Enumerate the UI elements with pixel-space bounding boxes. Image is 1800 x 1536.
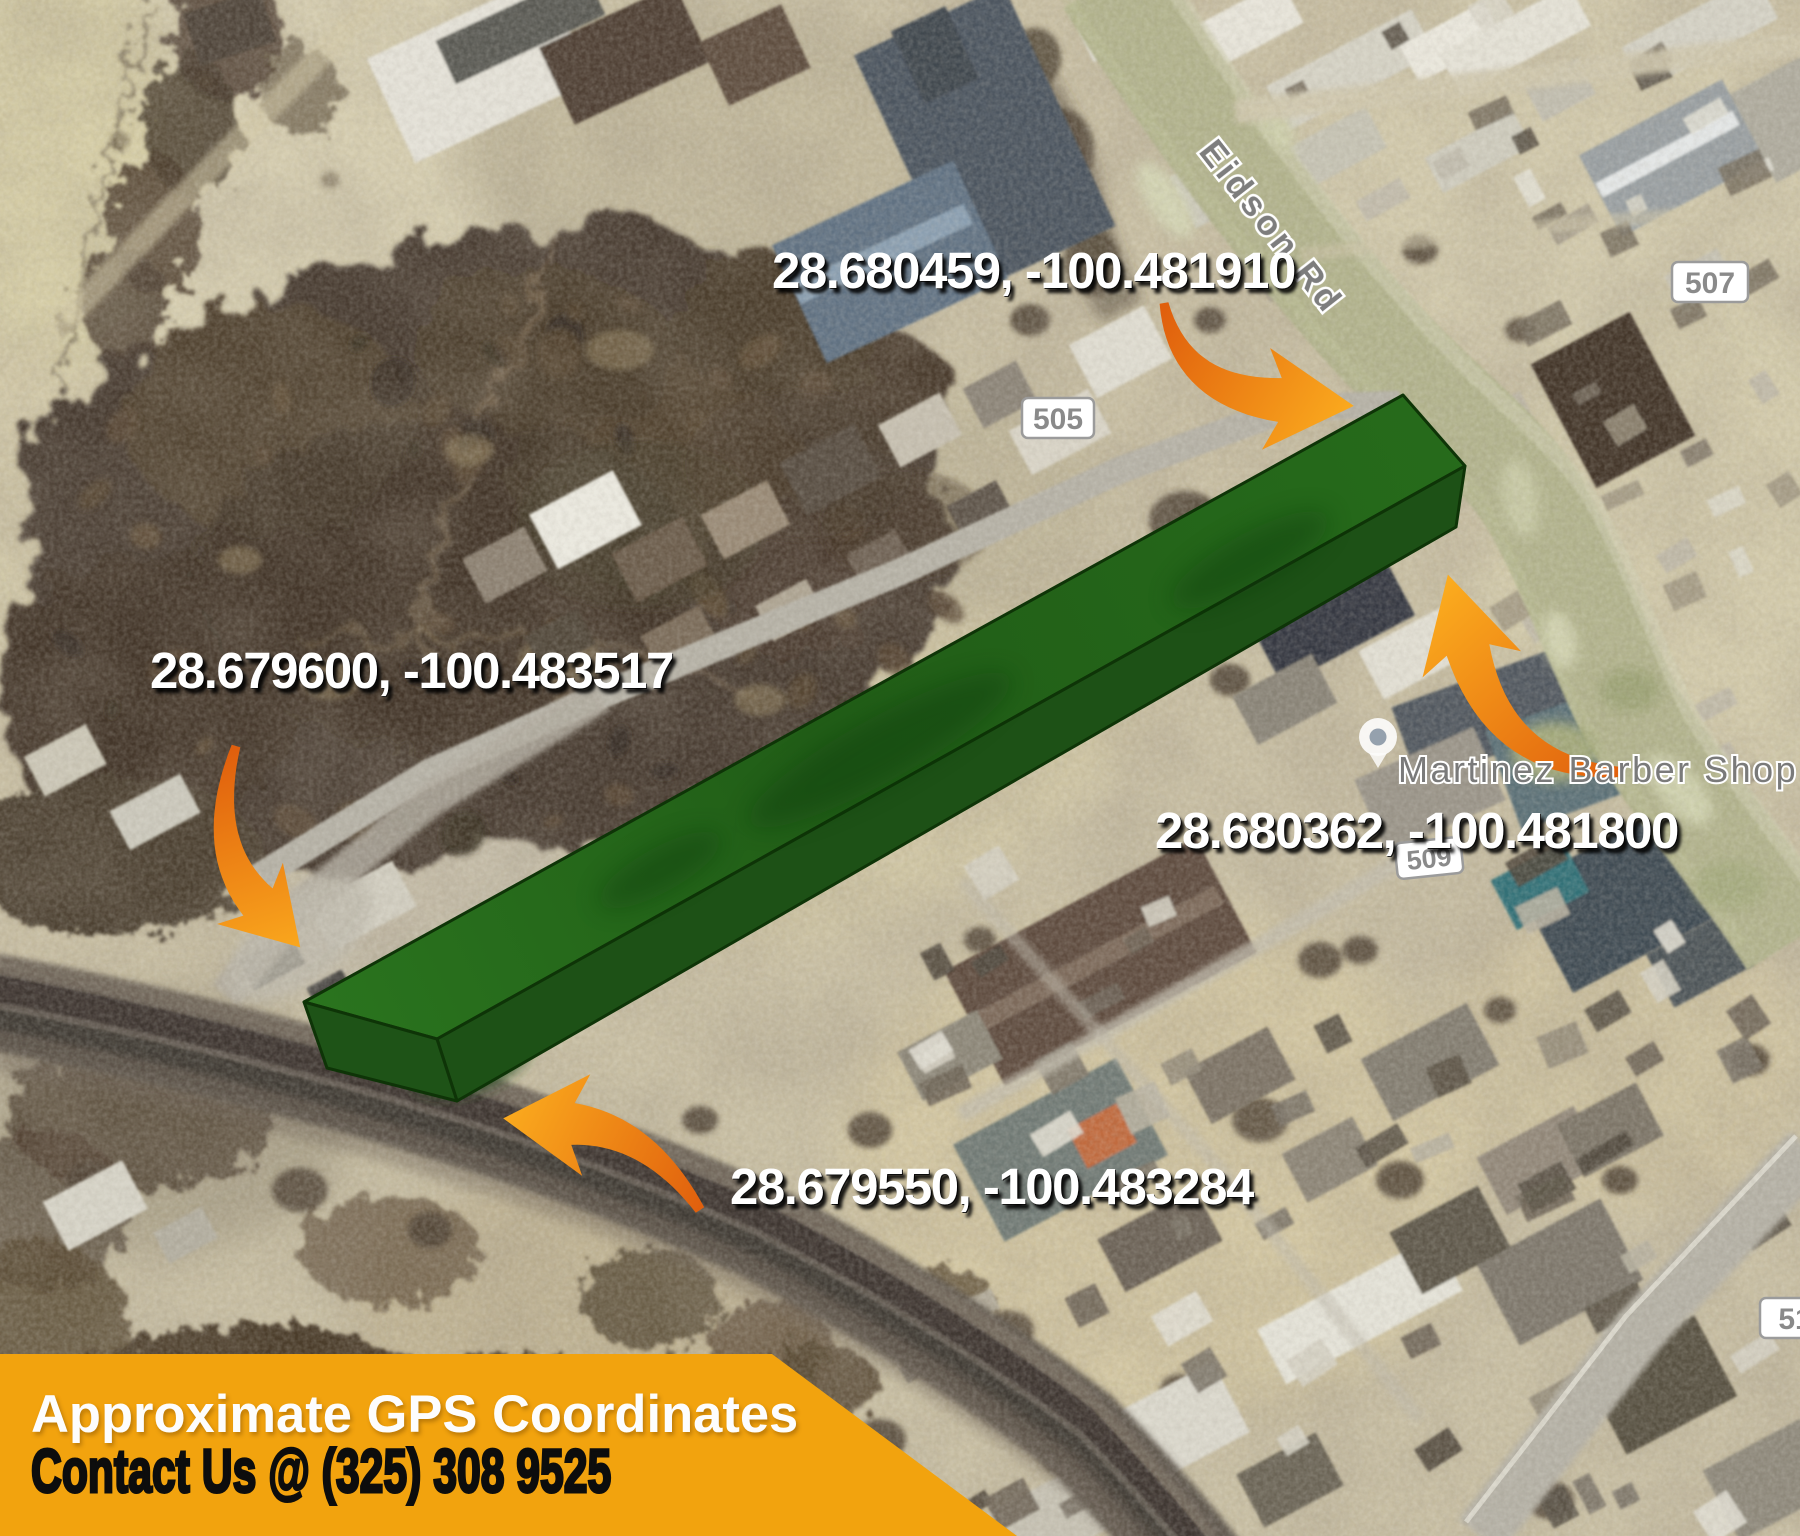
svg-text:28.679550, -100.483284: 28.679550, -100.483284 [730, 1158, 1255, 1215]
svg-text:28.679600, -100.483517: 28.679600, -100.483517 [150, 642, 673, 699]
svg-text:Martinez Barber Shop: Martinez Barber Shop [1398, 749, 1798, 790]
svg-text:507: 507 [1685, 267, 1735, 300]
svg-text:28.680362, -100.481800: 28.680362, -100.481800 [1155, 802, 1678, 859]
svg-text:Contact Us @ (325) 308 9525: Contact Us @ (325) 308 9525 [31, 1438, 611, 1506]
svg-text:Approximate GPS Coordinates: Approximate GPS Coordinates [31, 1385, 798, 1444]
svg-text:28.680459, -100.481910: 28.680459, -100.481910 [772, 242, 1295, 299]
svg-text:51: 51 [1778, 1303, 1800, 1336]
svg-text:505: 505 [1033, 403, 1083, 436]
